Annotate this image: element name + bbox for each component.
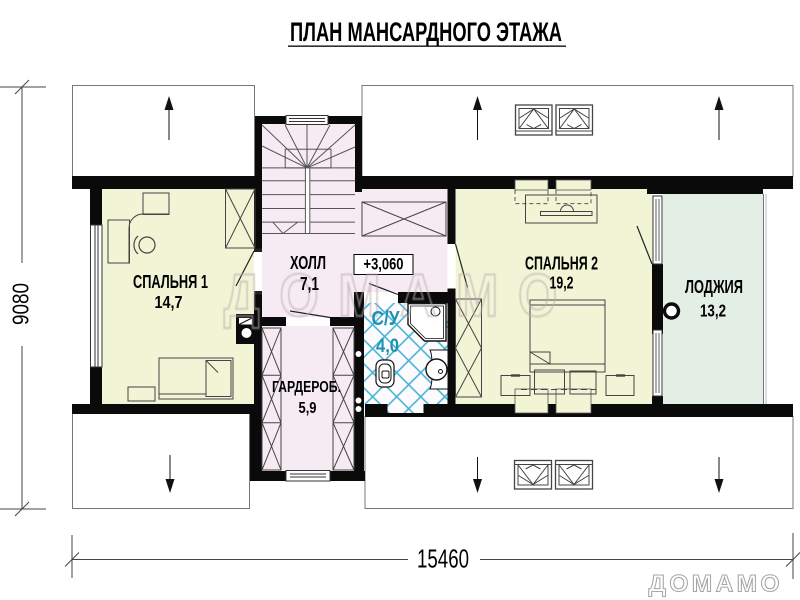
svg-text:4,0: 4,0 [376,336,399,357]
svg-text:СПАЛЬНЯ 1: СПАЛЬНЯ 1 [133,272,208,292]
svg-text:ХОЛЛ: ХОЛЛ [290,252,326,273]
svg-text:5,9: 5,9 [299,400,317,417]
svg-text:СПАЛЬНЯ 2: СПАЛЬНЯ 2 [525,254,598,274]
svg-text:С/У: С/У [372,308,400,330]
svg-text:ЛОДЖИЯ: ЛОДЖИЯ [685,277,743,297]
svg-text:ПЛАН МАНСАРДНОГО ЭТАЖА: ПЛАН МАНСАРДНОГО ЭТАЖА [290,17,562,47]
svg-text:15460: 15460 [417,544,469,574]
svg-text:7,1: 7,1 [300,274,319,294]
svg-text:14,7: 14,7 [155,292,183,312]
svg-text:13,2: 13,2 [700,301,726,321]
svg-text:9080: 9080 [8,283,34,325]
svg-text:ГАРДЕРОБ.: ГАРДЕРОБ. [272,379,341,396]
svg-text:19,2: 19,2 [550,273,574,293]
